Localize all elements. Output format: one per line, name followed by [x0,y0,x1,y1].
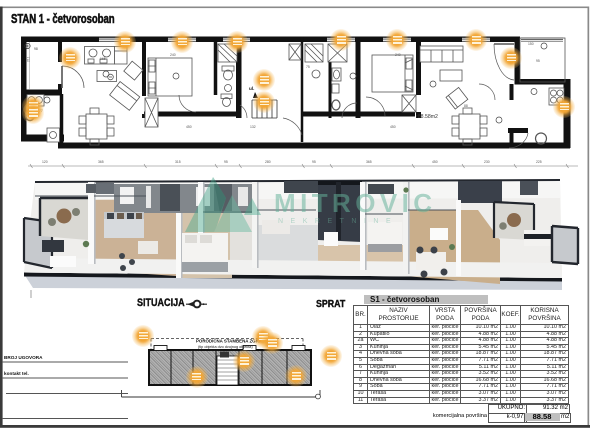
svg-text:450: 450 [432,160,438,164]
svg-text:150: 150 [528,42,534,46]
svg-text:88: 88 [464,104,468,108]
svg-text:(tip objekta dvo dvojnog objek: (tip objekta dvo dvojnog objekta) [198,345,253,349]
svg-text:ul.: ul. [249,86,254,91]
svg-text:240: 240 [395,53,401,57]
svg-text:280: 280 [265,160,271,164]
svg-text:95: 95 [312,160,316,164]
svg-text:75: 75 [306,65,310,69]
svg-text:225: 225 [536,160,542,164]
svg-text:165: 165 [100,57,106,61]
svg-text:132: 132 [250,125,256,129]
svg-text:450: 450 [390,125,396,129]
svg-text:95: 95 [536,59,540,63]
svg-text:211: 211 [27,56,31,62]
svg-text:230: 230 [484,160,490,164]
svg-text:450: 450 [186,125,192,129]
svg-text:95: 95 [224,160,228,164]
svg-text:315: 315 [175,160,181,164]
svg-text:240: 240 [170,53,176,57]
svg-text:365: 365 [366,160,372,164]
svg-text:98: 98 [34,47,38,51]
svg-text:NEKRETNINE: NEKRETNINE [278,218,398,225]
svg-text:120: 120 [42,160,48,164]
svg-text:r88.58m2: r88.58m2 [416,114,438,120]
svg-text:365: 365 [98,160,104,164]
